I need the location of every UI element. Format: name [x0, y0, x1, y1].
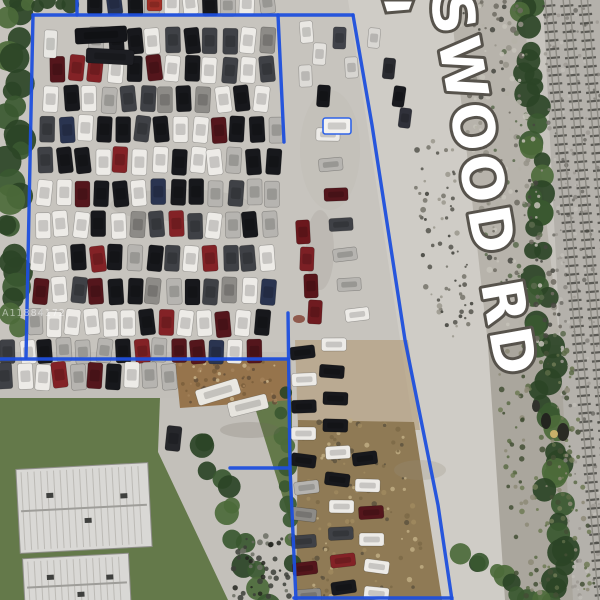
mls-watermark: A11884172 [2, 308, 66, 319]
aerial-photo-canvas: SWOOD RD A11884172 [0, 0, 600, 600]
aerial-photo: SWOOD RD A11884172 [0, 0, 600, 600]
tan-bag [550, 430, 558, 438]
partial-letter [382, 0, 414, 13]
red-stain [293, 315, 305, 323]
